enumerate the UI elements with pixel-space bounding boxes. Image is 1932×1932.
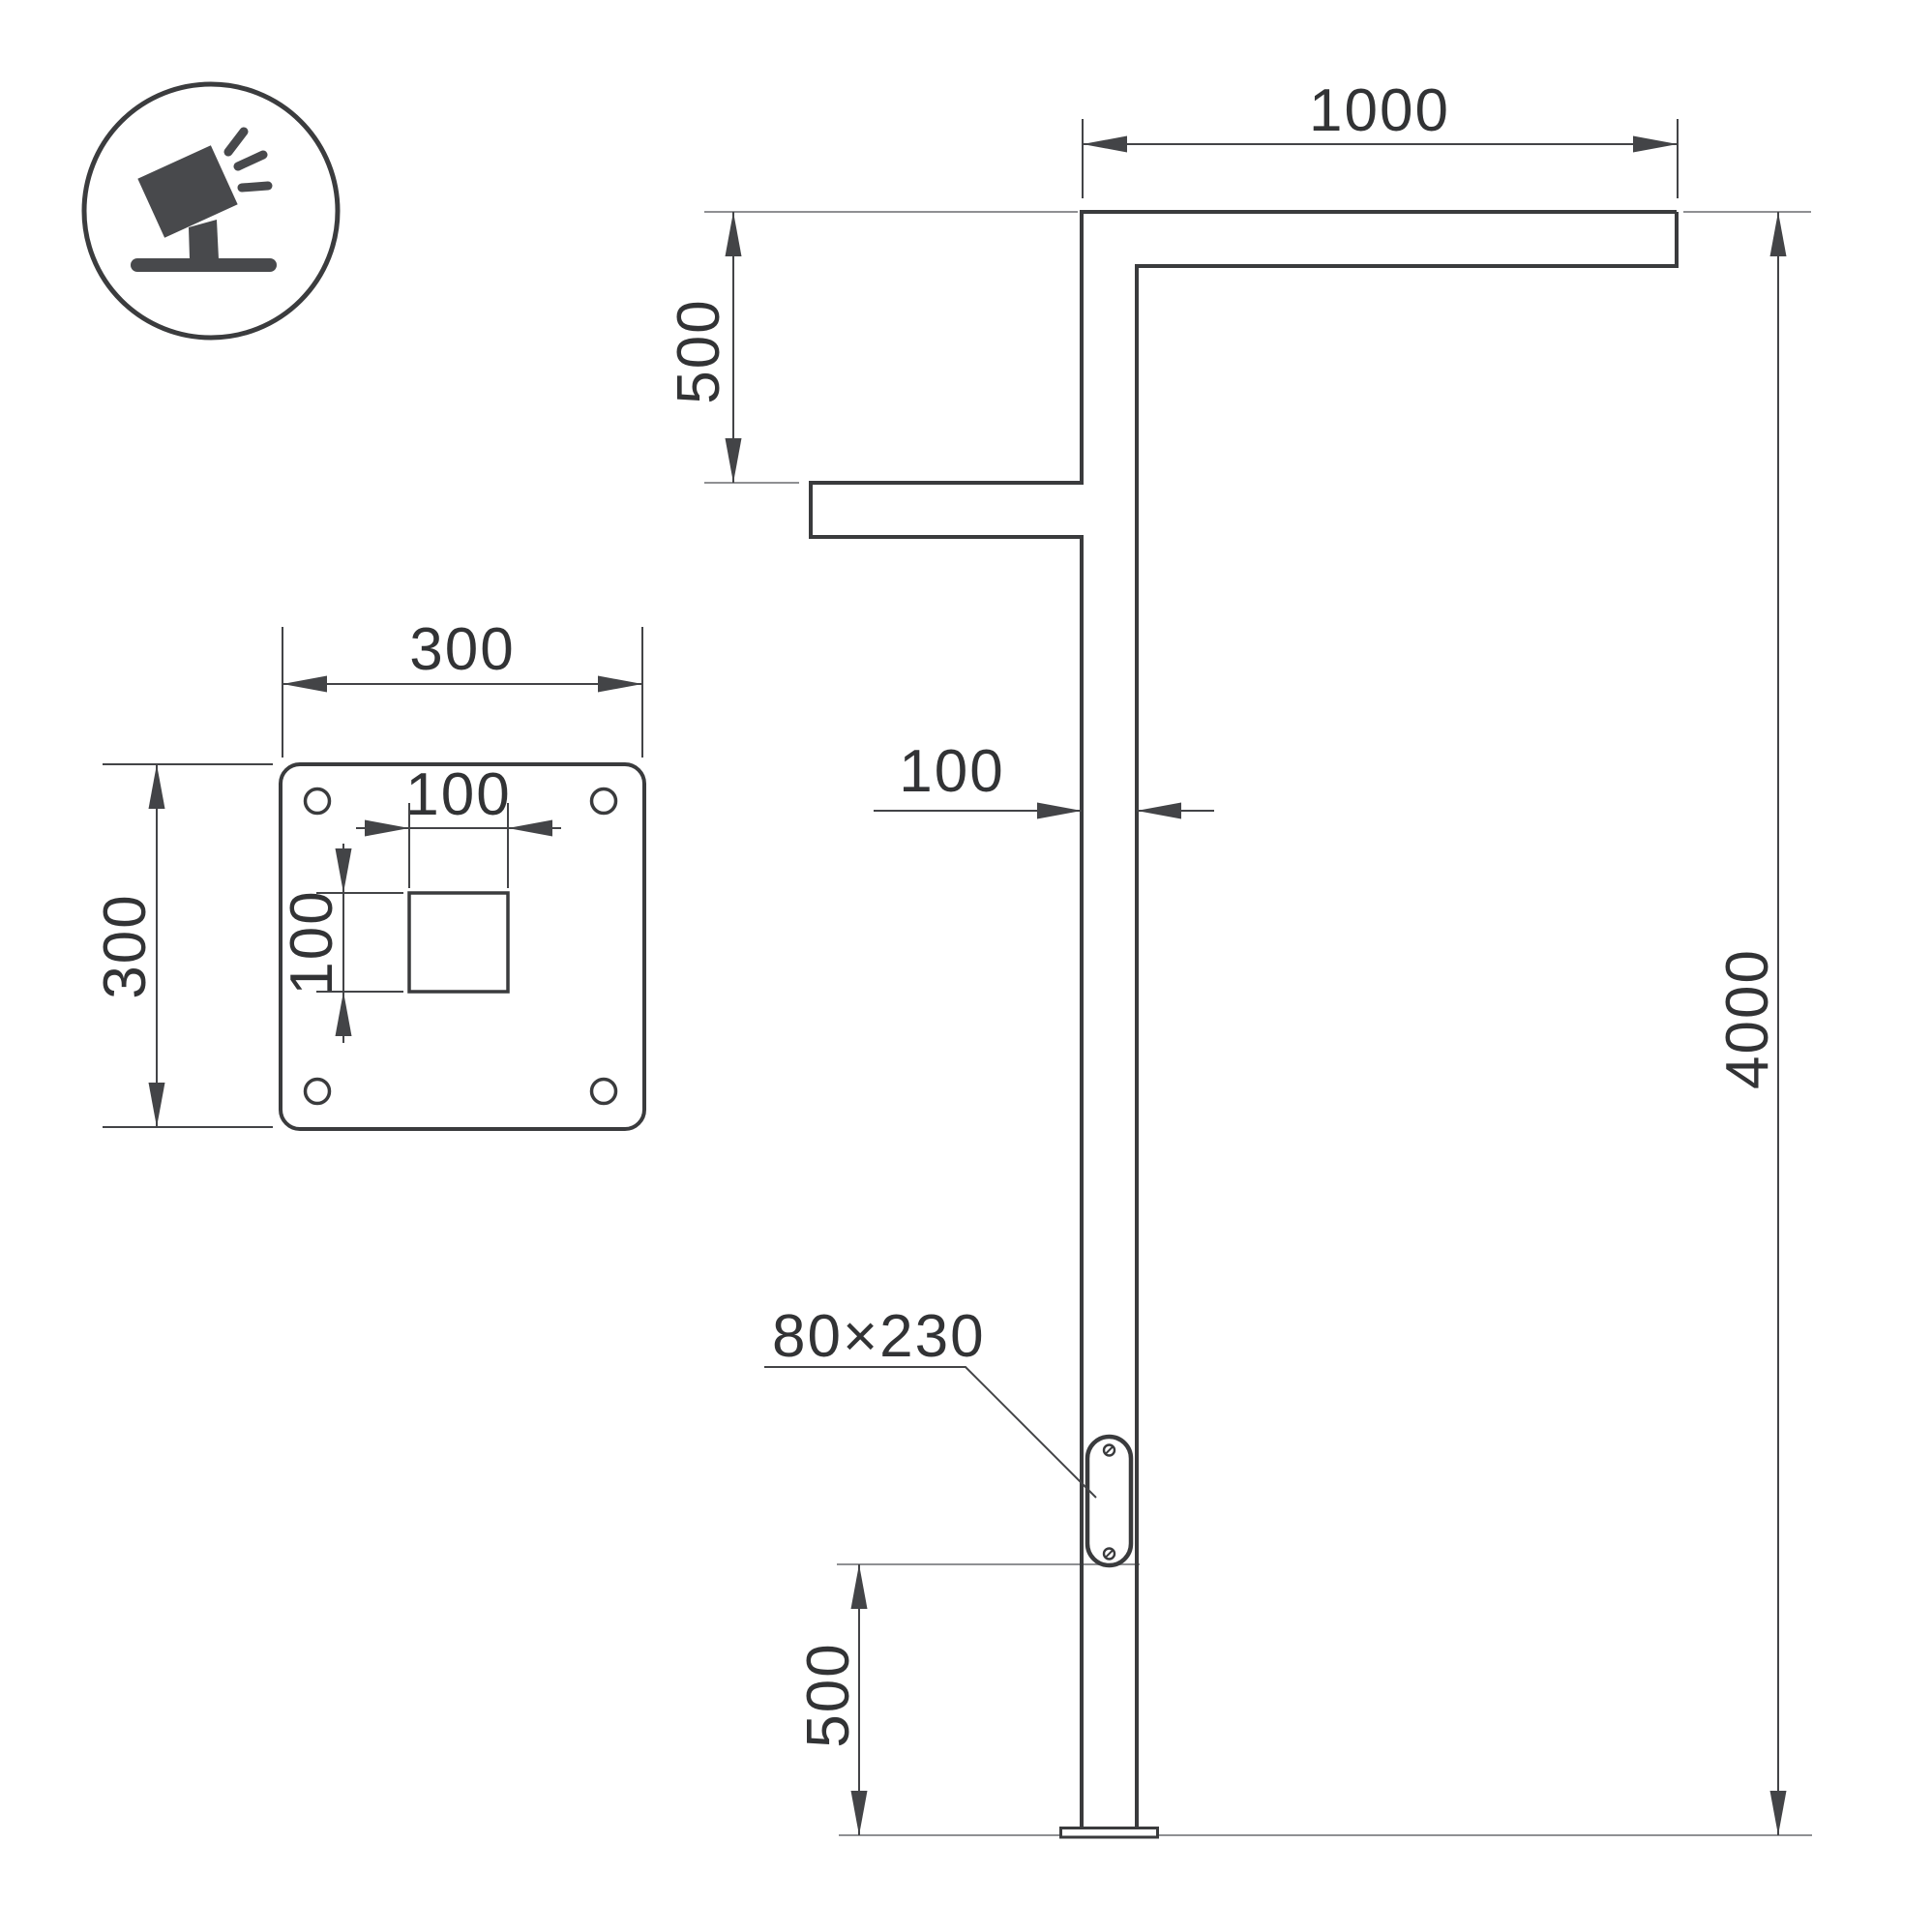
arrow-up-icon: [1770, 212, 1787, 256]
bolt-hole-top-left: [306, 789, 330, 814]
dimension-pole-width: 100: [874, 738, 1214, 819]
dimension-plate-width: 300: [282, 616, 642, 758]
floodlight-base: [131, 258, 277, 272]
arrow-left-icon: [1083, 136, 1127, 153]
dim-text-plate-width: 300: [409, 616, 515, 683]
dimension-hole-height: 100: [279, 844, 403, 1043]
arrow-up-icon: [149, 764, 165, 809]
dim-text-panel-offset: 500: [795, 1642, 862, 1747]
dimension-panel-offset: 500: [795, 1564, 868, 1835]
dimension-plate-height: 300: [92, 764, 273, 1127]
drawing-canvas: 1000 500 100 4000 80×230 500: [0, 0, 1932, 1932]
arrow-down-icon: [726, 438, 742, 483]
reference-lines: [704, 212, 1812, 1835]
arrow-down-icon: [851, 1791, 868, 1835]
dimension-hole-width: 100: [356, 761, 561, 888]
arrow-right-icon: [1633, 136, 1678, 153]
dimension-arm-drop: 500: [666, 212, 742, 483]
dim-text-plate-height: 300: [92, 893, 159, 998]
base-flange: [1061, 1828, 1158, 1838]
dim-text-hole-width: 100: [405, 761, 511, 828]
pole-right-outline-with-top-arm: [1137, 212, 1677, 1828]
arrow-down-icon: [1770, 1791, 1787, 1835]
bolt-hole-bottom-left: [306, 1080, 330, 1104]
bolt-hole-bottom-right: [592, 1080, 616, 1104]
arrow-right-icon: [365, 820, 409, 837]
arrow-up-icon: [336, 992, 352, 1036]
center-square-hole: [409, 893, 508, 992]
floodlight-icon: [84, 84, 338, 338]
leader-line: [764, 1367, 1096, 1498]
arrow-down-icon: [149, 1083, 165, 1127]
arrow-down-icon: [336, 848, 352, 893]
arrow-up-icon: [851, 1564, 868, 1609]
arrow-right-icon: [598, 676, 642, 693]
arrow-left-icon: [508, 820, 552, 837]
arrow-right-icon: [1037, 803, 1082, 819]
bolt-hole-top-right: [592, 789, 616, 814]
dim-text-hole-height: 100: [279, 889, 345, 995]
dim-text-pole-width: 100: [899, 738, 1004, 805]
dim-text-pole-height: 4000: [1714, 948, 1781, 1089]
dim-text-arm-length: 1000: [1309, 77, 1450, 144]
arrow-left-icon: [1137, 803, 1181, 819]
label-text-access-panel: 80×230: [772, 1303, 986, 1370]
dim-text-arm-drop: 500: [666, 298, 732, 403]
arrow-left-icon: [282, 676, 327, 693]
pole-left-outline-with-left-arm: [811, 212, 1677, 1828]
dimension-arm-length: 1000: [1083, 77, 1678, 198]
arrow-up-icon: [726, 212, 742, 256]
pole-elevation: [811, 212, 1677, 1837]
pole-dimension-drawing: 1000 500 100 4000 80×230 500: [0, 0, 1932, 1932]
label-access-panel: 80×230: [764, 1303, 1096, 1498]
dimension-pole-height: 4000: [1714, 212, 1787, 1835]
